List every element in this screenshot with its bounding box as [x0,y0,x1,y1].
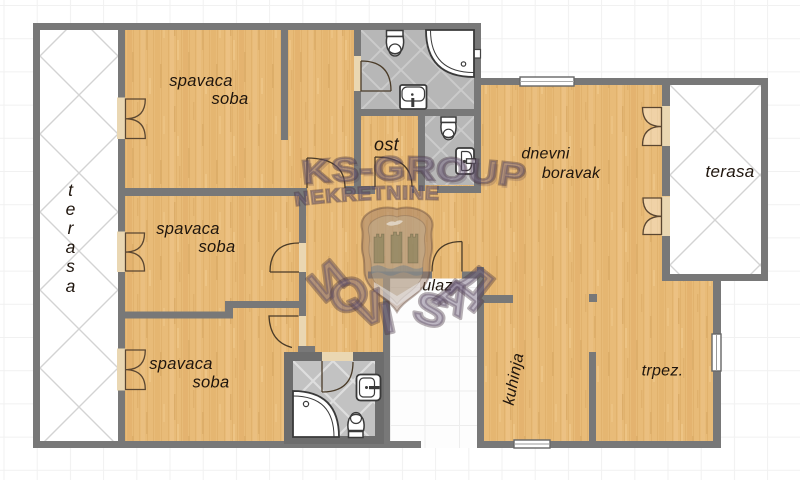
svg-text:terasa: terasa [705,162,754,181]
svg-text:boravak: boravak [542,165,601,182]
svg-text:dnevni: dnevni [521,146,570,163]
svg-text:soba: soba [199,238,236,256]
svg-text:spavaca: spavaca [156,220,220,238]
svg-text:trpez.: trpez. [642,363,684,380]
svg-text:a: a [66,237,76,257]
svg-text:s: s [66,256,75,276]
svg-text:soba: soba [212,90,249,108]
svg-text:spavaca: spavaca [149,355,213,373]
svg-text:a: a [66,276,76,296]
svg-text:spavaca: spavaca [169,72,233,90]
svg-text:e: e [66,199,76,219]
svg-text:soba: soba [193,374,230,392]
